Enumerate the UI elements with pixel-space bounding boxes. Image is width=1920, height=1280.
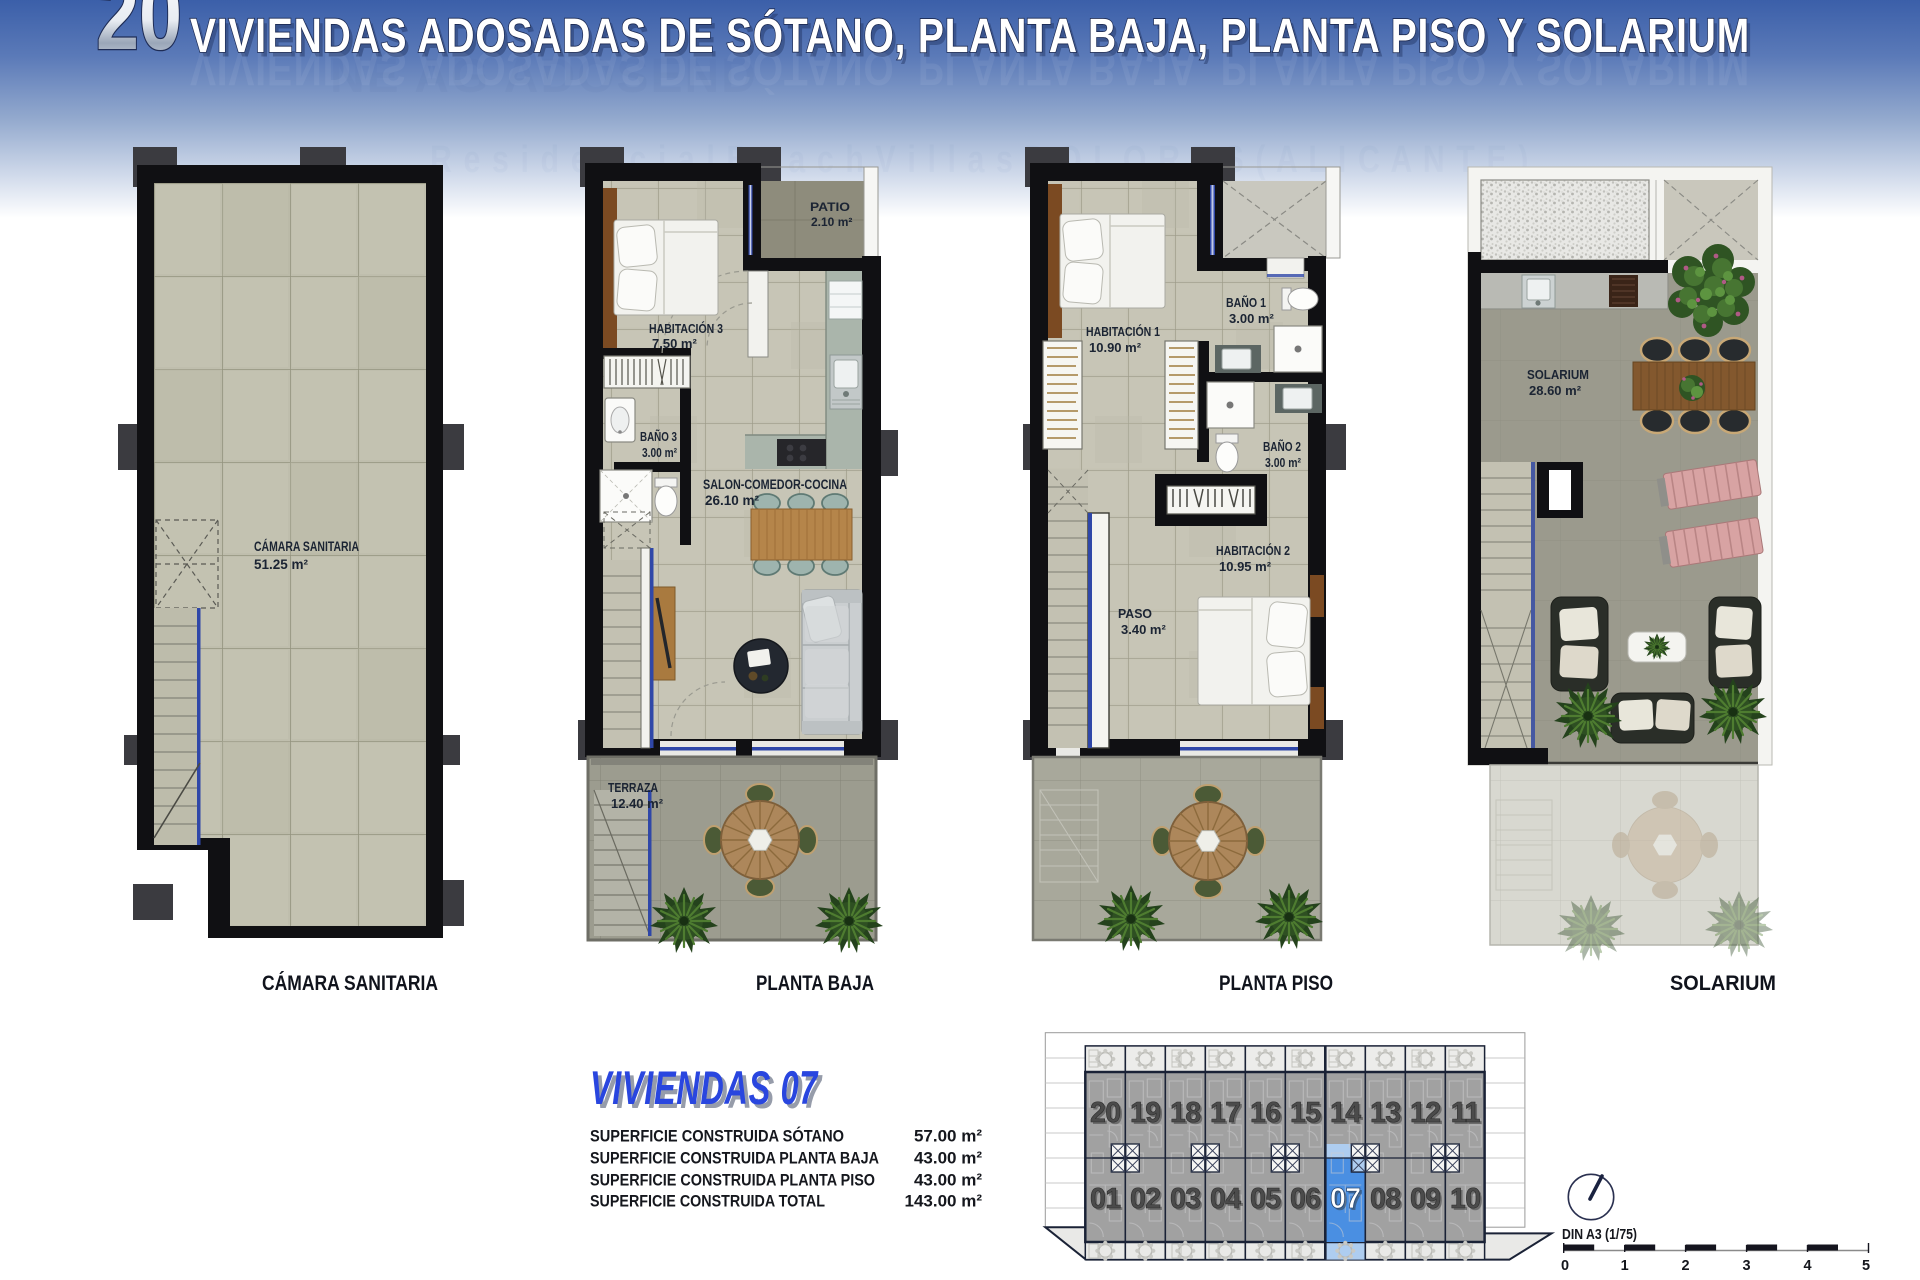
svg-text:DIN A3 (1/75): DIN A3 (1/75) <box>1562 1227 1637 1243</box>
svg-text:10.95 m²: 10.95 m² <box>1219 559 1272 574</box>
svg-text:51.25 m²: 51.25 m² <box>254 557 309 572</box>
svg-text:CÁMARA SANITARIA: CÁMARA SANITARIA <box>262 970 438 995</box>
svg-text:PASO: PASO <box>1118 606 1152 621</box>
svg-text:18: 18 <box>1170 1097 1201 1129</box>
svg-text:26.10 m²: 26.10 m² <box>705 493 760 508</box>
svg-text:HABITACIÓN 3: HABITACIÓN 3 <box>649 321 723 336</box>
svg-text:07: 07 <box>1330 1183 1361 1215</box>
svg-text:3.00 m²: 3.00 m² <box>642 445 678 460</box>
svg-text:SUPERFICIE CONSTRUIDA PLANTA B: SUPERFICIE CONSTRUIDA PLANTA BAJA <box>590 1149 879 1168</box>
svg-text:3.40 m²: 3.40 m² <box>1121 622 1166 637</box>
svg-text:12: 12 <box>1410 1097 1441 1129</box>
svg-text:10.90 m²: 10.90 m² <box>1089 340 1142 355</box>
svg-text:4: 4 <box>1803 1258 1811 1274</box>
svg-text:SOLARIUM: SOLARIUM <box>1527 367 1589 382</box>
svg-text:13: 13 <box>1370 1097 1401 1129</box>
svg-text:05: 05 <box>1250 1183 1281 1215</box>
svg-text:SUPERFICIE CONSTRUIDA SÓTANO: SUPERFICIE CONSTRUIDA SÓTANO <box>590 1127 844 1146</box>
svg-text:01: 01 <box>1090 1183 1121 1215</box>
svg-text:PLANTA BAJA: PLANTA BAJA <box>756 971 874 995</box>
svg-text:03: 03 <box>1170 1183 1201 1215</box>
svg-text:VIVIENDAS ADOSADAS DE SÓTANO,: VIVIENDAS ADOSADAS DE SÓTANO, PLANTA BAJ… <box>190 41 1750 96</box>
svg-text:SUPERFICIE CONSTRUIDA PLANTA P: SUPERFICIE CONSTRUIDA PLANTA PISO <box>590 1171 875 1190</box>
svg-text:08: 08 <box>1370 1183 1401 1215</box>
svg-text:143.00 m²: 143.00 m² <box>905 1192 983 1211</box>
svg-text:28.60 m²: 28.60 m² <box>1529 383 1582 398</box>
svg-text:HABITACIÓN 1: HABITACIÓN 1 <box>1086 324 1160 339</box>
svg-text:3: 3 <box>1743 1258 1751 1274</box>
svg-text:PATIO: PATIO <box>810 200 850 214</box>
svg-text:HABITACIÓN 2: HABITACIÓN 2 <box>1216 543 1290 558</box>
svg-text:17: 17 <box>1210 1097 1241 1129</box>
svg-text:SALON-COMEDOR-COCINA: SALON-COMEDOR-COCINA <box>703 477 847 492</box>
svg-text:0: 0 <box>1561 1258 1569 1274</box>
svg-text:43.00 m²: 43.00 m² <box>914 1171 982 1190</box>
svg-text:3.00 m²: 3.00 m² <box>1229 311 1274 326</box>
svg-text:BAÑO 2: BAÑO 2 <box>1263 439 1301 454</box>
svg-text:04: 04 <box>1210 1183 1241 1215</box>
svg-text:15: 15 <box>1290 1097 1321 1129</box>
svg-text:43.00 m²: 43.00 m² <box>914 1149 982 1168</box>
svg-text:57.00 m²: 57.00 m² <box>914 1127 982 1146</box>
svg-text:CÁMARA SANITARIA: CÁMARA SANITARIA <box>254 539 359 554</box>
svg-text:06: 06 <box>1290 1183 1321 1215</box>
svg-text:12.40 m²: 12.40 m² <box>611 796 664 811</box>
svg-text:19: 19 <box>1130 1097 1161 1129</box>
svg-text:1: 1 <box>1621 1258 1629 1274</box>
svg-text:14: 14 <box>1330 1097 1361 1129</box>
svg-text:3.00 m²: 3.00 m² <box>1265 455 1302 470</box>
svg-text:11: 11 <box>1451 1097 1481 1129</box>
svg-text:20: 20 <box>1090 1097 1121 1129</box>
svg-text:20: 20 <box>96 0 182 71</box>
svg-text:BAÑO 3: BAÑO 3 <box>640 429 677 444</box>
svg-text:VIVIENDAS 07: VIVIENDAS 07 <box>590 1061 819 1114</box>
svg-text:PLANTA PISO: PLANTA PISO <box>1219 971 1333 995</box>
svg-text:2.10 m²: 2.10 m² <box>811 215 852 229</box>
svg-text:2: 2 <box>1682 1258 1690 1274</box>
svg-text:SUPERFICIE CONSTRUIDA TOTAL: SUPERFICIE CONSTRUIDA TOTAL <box>590 1192 825 1211</box>
svg-text:5: 5 <box>1862 1258 1870 1274</box>
svg-text:16: 16 <box>1250 1097 1281 1129</box>
svg-text:BAÑO 1: BAÑO 1 <box>1226 295 1266 310</box>
svg-text:SOLARIUM: SOLARIUM <box>1670 971 1776 995</box>
svg-text:02: 02 <box>1130 1183 1161 1215</box>
svg-text:10: 10 <box>1450 1183 1481 1215</box>
svg-text:TERRAZA: TERRAZA <box>608 780 658 795</box>
svg-text:09: 09 <box>1410 1183 1441 1215</box>
svg-text:7.50 m²: 7.50 m² <box>652 336 697 351</box>
